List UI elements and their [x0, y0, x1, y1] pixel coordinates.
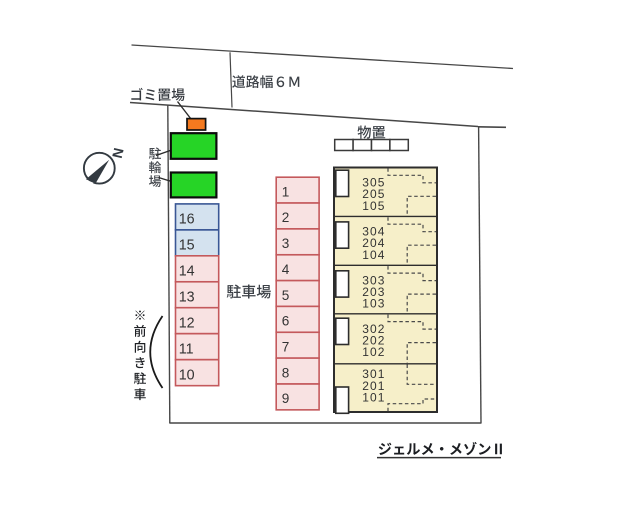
- svg-text:14: 14: [179, 263, 195, 279]
- svg-text:101: 101: [362, 391, 385, 405]
- svg-text:2: 2: [282, 210, 290, 225]
- svg-text:5: 5: [282, 288, 290, 303]
- svg-text:105: 105: [362, 199, 385, 213]
- svg-text:10: 10: [179, 367, 195, 383]
- svg-text:16: 16: [179, 212, 195, 228]
- svg-text:11: 11: [179, 341, 194, 357]
- svg-text:13: 13: [179, 289, 195, 305]
- svg-text:8: 8: [282, 365, 290, 380]
- svg-text:6: 6: [282, 314, 290, 329]
- svg-text:12: 12: [179, 315, 195, 331]
- svg-text:1: 1: [282, 184, 290, 199]
- svg-text:9: 9: [282, 391, 290, 406]
- svg-text:7: 7: [282, 340, 290, 355]
- svg-text:4: 4: [282, 262, 290, 277]
- svg-text:103: 103: [362, 297, 385, 311]
- svg-text:15: 15: [179, 238, 195, 254]
- svg-text:3: 3: [282, 236, 290, 251]
- svg-text:104: 104: [362, 248, 385, 262]
- svg-text:102: 102: [362, 345, 385, 359]
